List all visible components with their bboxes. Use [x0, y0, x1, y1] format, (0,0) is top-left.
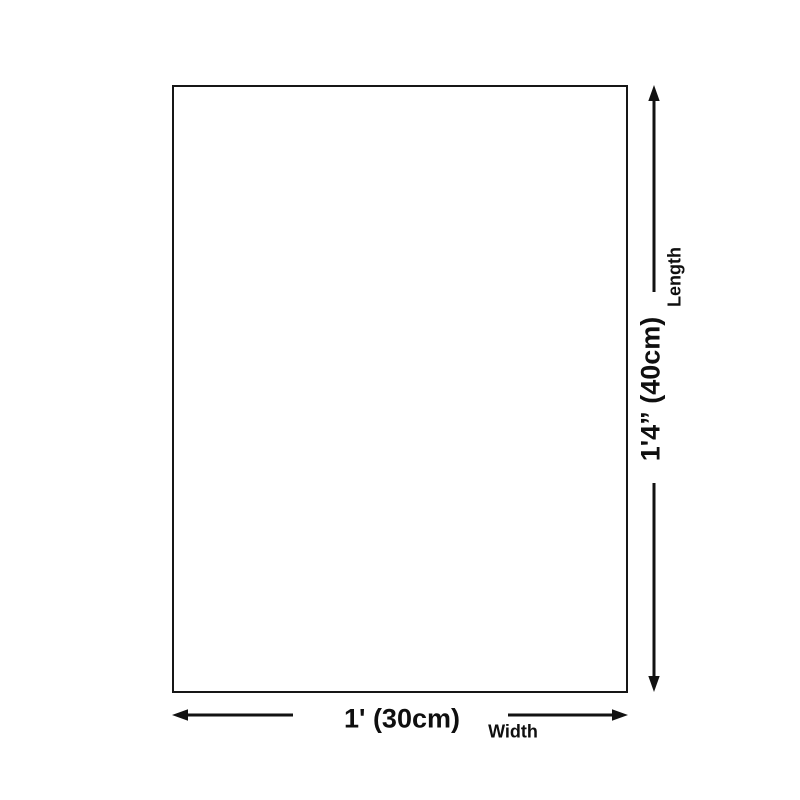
length-dimension-value: 1'4” (40cm) — [636, 317, 667, 462]
width-dimension-label: Width — [488, 722, 538, 743]
product-outline-rectangle — [172, 85, 628, 693]
arrow-left-icon — [172, 709, 188, 720]
width-dimension-value: 1' (30cm) — [344, 704, 460, 735]
product-dimension-diagram: 1'4” (40cm) Length 1' (30cm) Width — [0, 0, 800, 800]
arrow-up-icon — [648, 85, 659, 101]
arrow-right-icon — [612, 709, 628, 720]
arrow-down-icon — [648, 676, 659, 692]
length-dimension-label: Length — [665, 247, 686, 307]
